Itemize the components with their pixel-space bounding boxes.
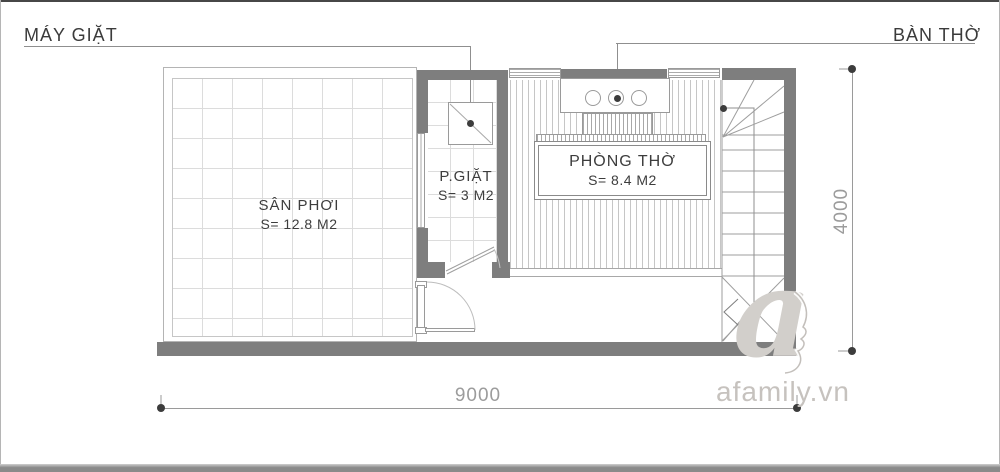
floor-plan-canvas: MÁY GIẶT BÀN THỜ SÂN PHƠI S= 12.8 M2 P.G… [0,0,1000,472]
dimension-dot-4000-top [848,65,856,73]
dimension-value-4000: 4000 [831,181,853,241]
leader-line-may-giat-h [24,46,470,47]
window-top-left [509,68,561,78]
leader-line-ban-tho-h [616,43,975,44]
frame-border-left [0,0,1,472]
dimension-value-9000: 9000 [438,385,518,407]
door-hall-arc [427,282,475,330]
leader-dot-altar [614,95,621,102]
phong-tho-name: PHÒNG THỜ [569,152,676,172]
leader-dot-washing-machine [467,120,474,127]
label-may-giat: MÁY GIẶT [24,25,118,46]
frame-border-bottom [0,464,1000,472]
altar-circle-right [631,90,647,106]
phong-tho-edge-band [510,268,722,277]
pgiat-label: P.GIẶT S= 3 M2 [426,168,506,204]
wall-bottom [157,342,796,356]
stair-walkline-dot [720,105,727,112]
wall-pgiat-top [417,70,508,80]
window-top-right [668,68,720,78]
phong-tho-area: S= 8.4 M2 [588,172,657,190]
wall-pgiat-left-upper [417,70,428,133]
window-pgiat-left [417,133,425,228]
altar-table [582,113,653,136]
san-phoi-label: SÂN PHƠI S= 12.8 M2 [219,197,379,233]
pgiat-area: S= 3 M2 [426,187,506,205]
san-phoi-area: S= 12.8 M2 [219,216,379,234]
pgiat-name: P.GIẶT [426,168,506,187]
wall-pgiat-bottom-left [417,262,445,278]
phong-tho-label-box: PHÒNG THỜ S= 8.4 M2 [534,141,711,200]
watermark-logo-letter: a [733,252,812,374]
dimension-dot-9000-left [157,404,165,412]
watermark-text: afamily.vn [716,376,850,408]
san-phoi-name: SÂN PHƠI [219,197,379,216]
door-frame [417,285,425,330]
dimension-dot-4000-bottom [848,347,856,355]
dimension-line-9000 [161,408,797,409]
wall-pgiat-bottom-right [492,262,510,278]
wall-pgiat-right [497,70,508,262]
altar-circle-left [585,90,601,106]
phong-tho-label: PHÒNG THỜ S= 8.4 M2 [538,145,707,196]
frame-border-top [0,0,1000,2]
door-leaf-hall [425,328,475,332]
